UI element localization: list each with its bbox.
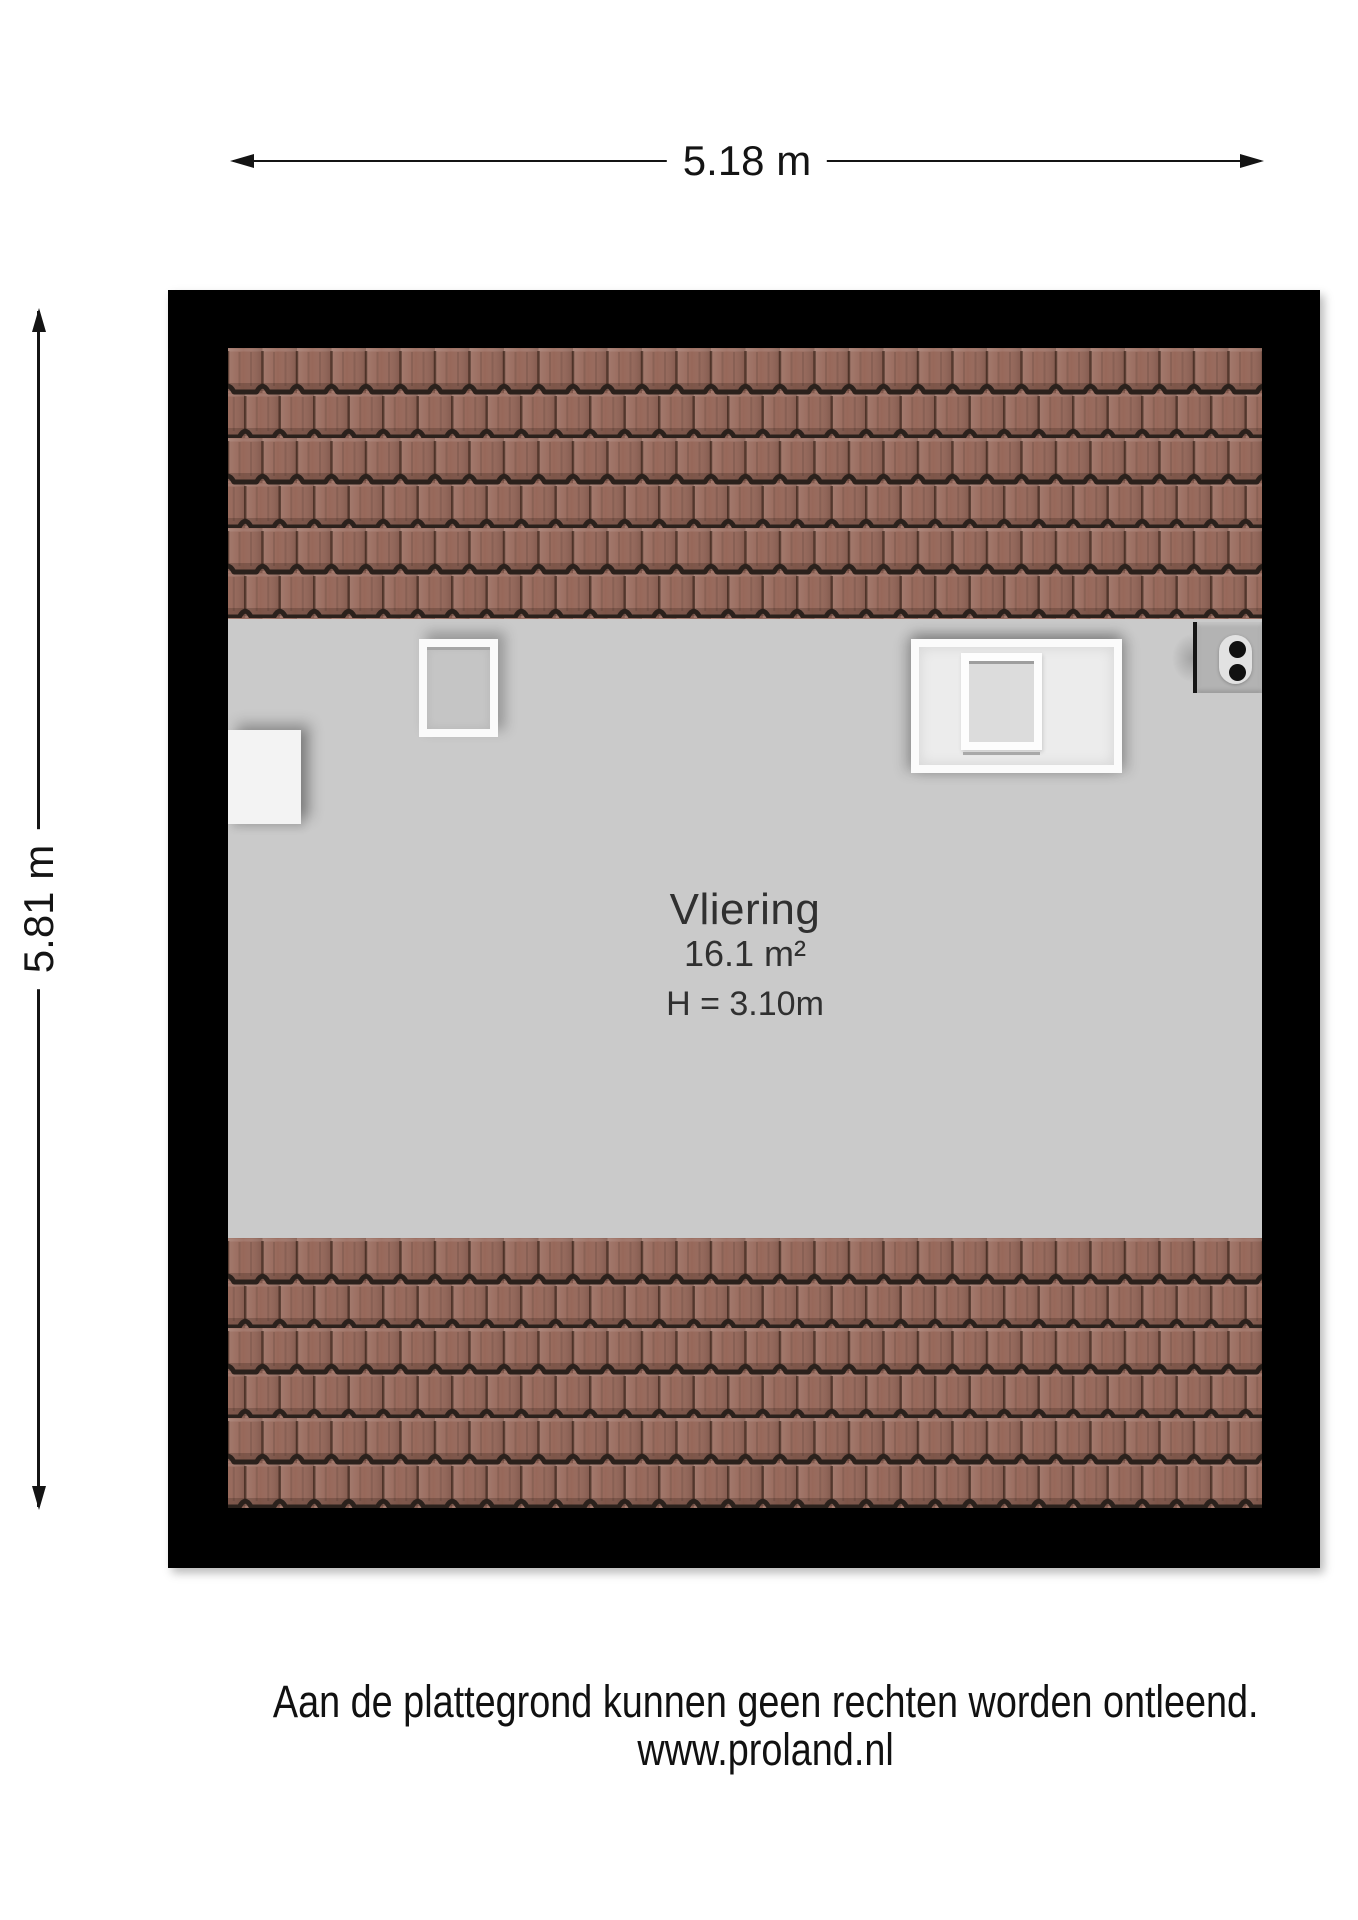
- window-top-line: [969, 661, 1034, 664]
- height-dimension-label: 5.81 m: [16, 829, 62, 989]
- arrow-left-icon: [230, 154, 254, 168]
- dormer-window: [911, 639, 1122, 773]
- arrow-right-icon: [1240, 154, 1264, 168]
- skylight-window: [419, 639, 498, 737]
- roof-tiles-bottom: [228, 1238, 1262, 1508]
- window-top-line: [427, 647, 490, 650]
- attic-floor: Vliering 16.1 m² H = 3.10m: [228, 348, 1262, 1508]
- width-dimension: 5.18 m: [231, 144, 1263, 178]
- disclaimer: Aan de plattegrond kunnen geen rechten w…: [166, 1678, 1358, 1774]
- vent-pipe-circle: [1229, 664, 1246, 681]
- dormer-inner-window: [961, 653, 1042, 750]
- window-sill-line: [963, 752, 1040, 755]
- floorplan-canvas: 5.18 m 5.81 m: [0, 0, 1358, 1920]
- vent-pipe-circle: [1229, 641, 1246, 658]
- ventilation-unit: [1197, 622, 1262, 693]
- arrow-up-icon: [32, 308, 46, 332]
- floor-shadow-arc: [1151, 624, 1193, 692]
- disclaimer-line-1: Aan de plattegrond kunnen geen rechten w…: [166, 1678, 1358, 1726]
- roof-tiles-top: [228, 348, 1262, 619]
- room-ceiling-height: H = 3.10m: [228, 982, 1262, 1026]
- door-opening: [228, 730, 301, 824]
- width-dimension-label: 5.18 m: [667, 138, 827, 184]
- exterior-wall: Vliering 16.1 m² H = 3.10m: [168, 290, 1320, 1568]
- arrow-down-icon: [32, 1486, 46, 1510]
- room-area: 16.1 m²: [228, 934, 1262, 974]
- disclaimer-line-2: www.proland.nl: [166, 1726, 1358, 1774]
- height-dimension: 5.81 m: [21, 309, 56, 1509]
- room-label: Vliering 16.1 m² H = 3.10m: [228, 888, 1262, 1026]
- room-name: Vliering: [228, 888, 1262, 932]
